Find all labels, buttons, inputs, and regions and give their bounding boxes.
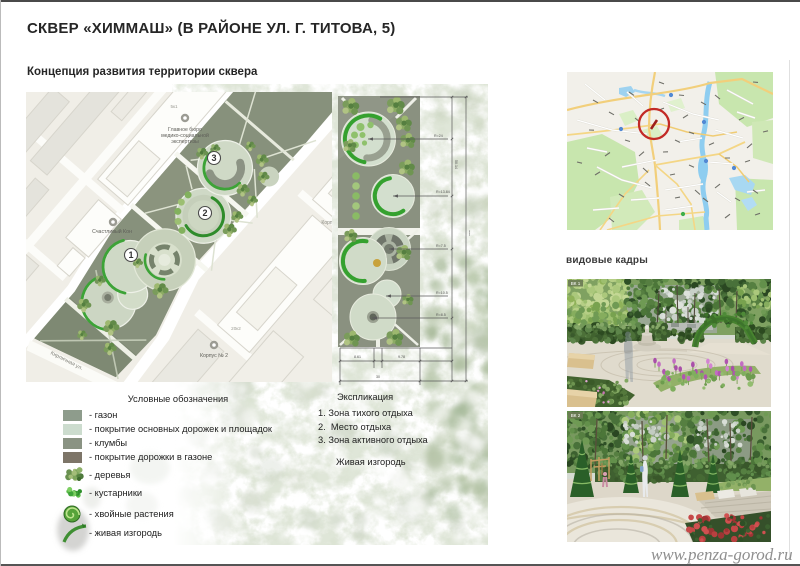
svg-text:50.14: 50.14	[454, 160, 458, 169]
svg-text:5к1: 5к1	[170, 104, 178, 109]
svg-text:ВК 2: ВК 2	[571, 413, 581, 418]
svg-text:3: 3	[211, 153, 216, 163]
svg-text:8.61: 8.61	[354, 355, 361, 359]
svg-text:R=7.5: R=7.5	[436, 244, 446, 248]
svg-text:Счастливый Кон: Счастливый Кон	[92, 228, 132, 235]
svg-text:Корп: Корп	[321, 220, 332, 226]
svg-text:30: 30	[376, 375, 380, 379]
svg-text:Корпус № 2: Корпус № 2	[200, 353, 228, 359]
svg-text:2: 2	[202, 208, 207, 218]
svg-text:R=24: R=24	[434, 134, 443, 138]
svg-text:R=13.84: R=13.84	[436, 190, 450, 194]
svg-text:R=8.5: R=8.5	[436, 313, 446, 317]
svg-text:R=10.5: R=10.5	[436, 291, 448, 295]
svg-text:экспертизы: экспертизы	[171, 139, 199, 145]
svg-text:медико-социальной: медико-социальной	[161, 132, 209, 139]
svg-text:1: 1	[128, 250, 133, 260]
svg-text:20к2: 20к2	[231, 326, 241, 331]
svg-text:9.78: 9.78	[398, 355, 405, 359]
svg-text:ВК 1: ВК 1	[571, 281, 581, 286]
svg-text:130: 130	[468, 230, 470, 236]
